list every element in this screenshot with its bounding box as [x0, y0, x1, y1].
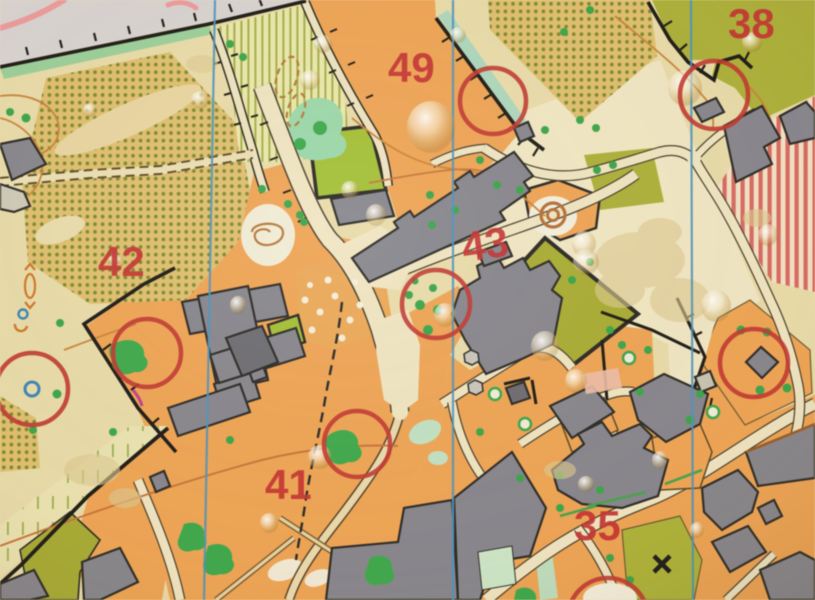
svg-text:35: 35	[574, 502, 621, 549]
svg-text:43: 43	[459, 218, 512, 271]
svg-text:49: 49	[388, 44, 435, 91]
svg-text:41: 41	[265, 461, 312, 508]
svg-text:42: 42	[98, 238, 145, 285]
svg-text:38: 38	[728, 0, 775, 47]
